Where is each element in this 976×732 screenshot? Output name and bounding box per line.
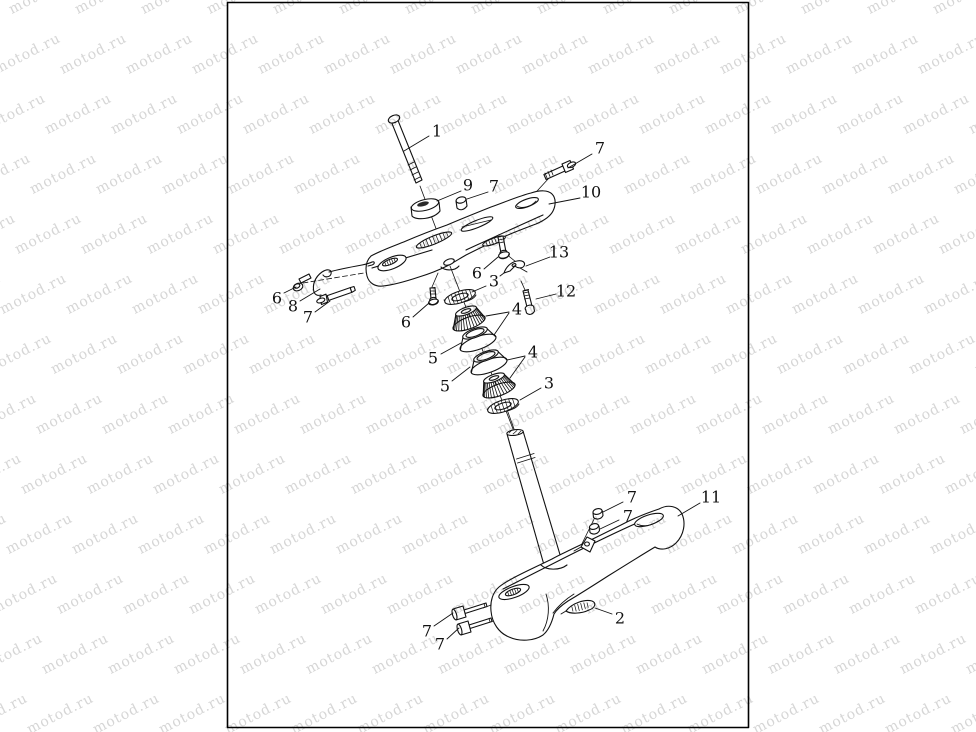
callout-label-5: 5 — [440, 377, 450, 396]
callout-label-6: 6 — [401, 313, 411, 332]
callout-label-4: 4 — [512, 300, 522, 319]
callout-label-13: 13 — [549, 243, 569, 262]
callout-label-7: 7 — [595, 139, 605, 158]
callout-label-7: 7 — [422, 622, 432, 641]
callout-label-8: 8 — [288, 297, 298, 316]
callout-label-10: 10 — [581, 183, 601, 202]
callout-label-9: 9 — [463, 176, 473, 195]
part-7-nut-lower — [589, 523, 600, 534]
callout-label-3: 3 — [489, 272, 499, 291]
callout-label-5: 5 — [428, 349, 438, 368]
callout-label-6: 6 — [272, 289, 282, 308]
callout-label-4: 4 — [528, 343, 538, 362]
part-7-nut-upper — [592, 508, 603, 519]
callout-label-12: 12 — [556, 282, 576, 301]
callout-label-3: 3 — [544, 374, 554, 393]
callout-label-7: 7 — [303, 308, 313, 327]
callout-label-7: 7 — [489, 177, 499, 196]
screenshot-canvas: 1797101312636876455437711277 motod.rumot… — [0, 0, 976, 732]
callout-label-7: 7 — [627, 488, 637, 507]
callout-label-1: 1 — [432, 122, 442, 141]
callout-label-7: 7 — [435, 635, 445, 654]
callout-label-11: 11 — [701, 488, 721, 507]
callout-label-6: 6 — [472, 264, 482, 283]
exploded-parts-diagram: 1797101312636876455437711277 — [0, 0, 976, 732]
callout-label-7: 7 — [623, 507, 633, 526]
callout-label-2: 2 — [615, 609, 625, 628]
